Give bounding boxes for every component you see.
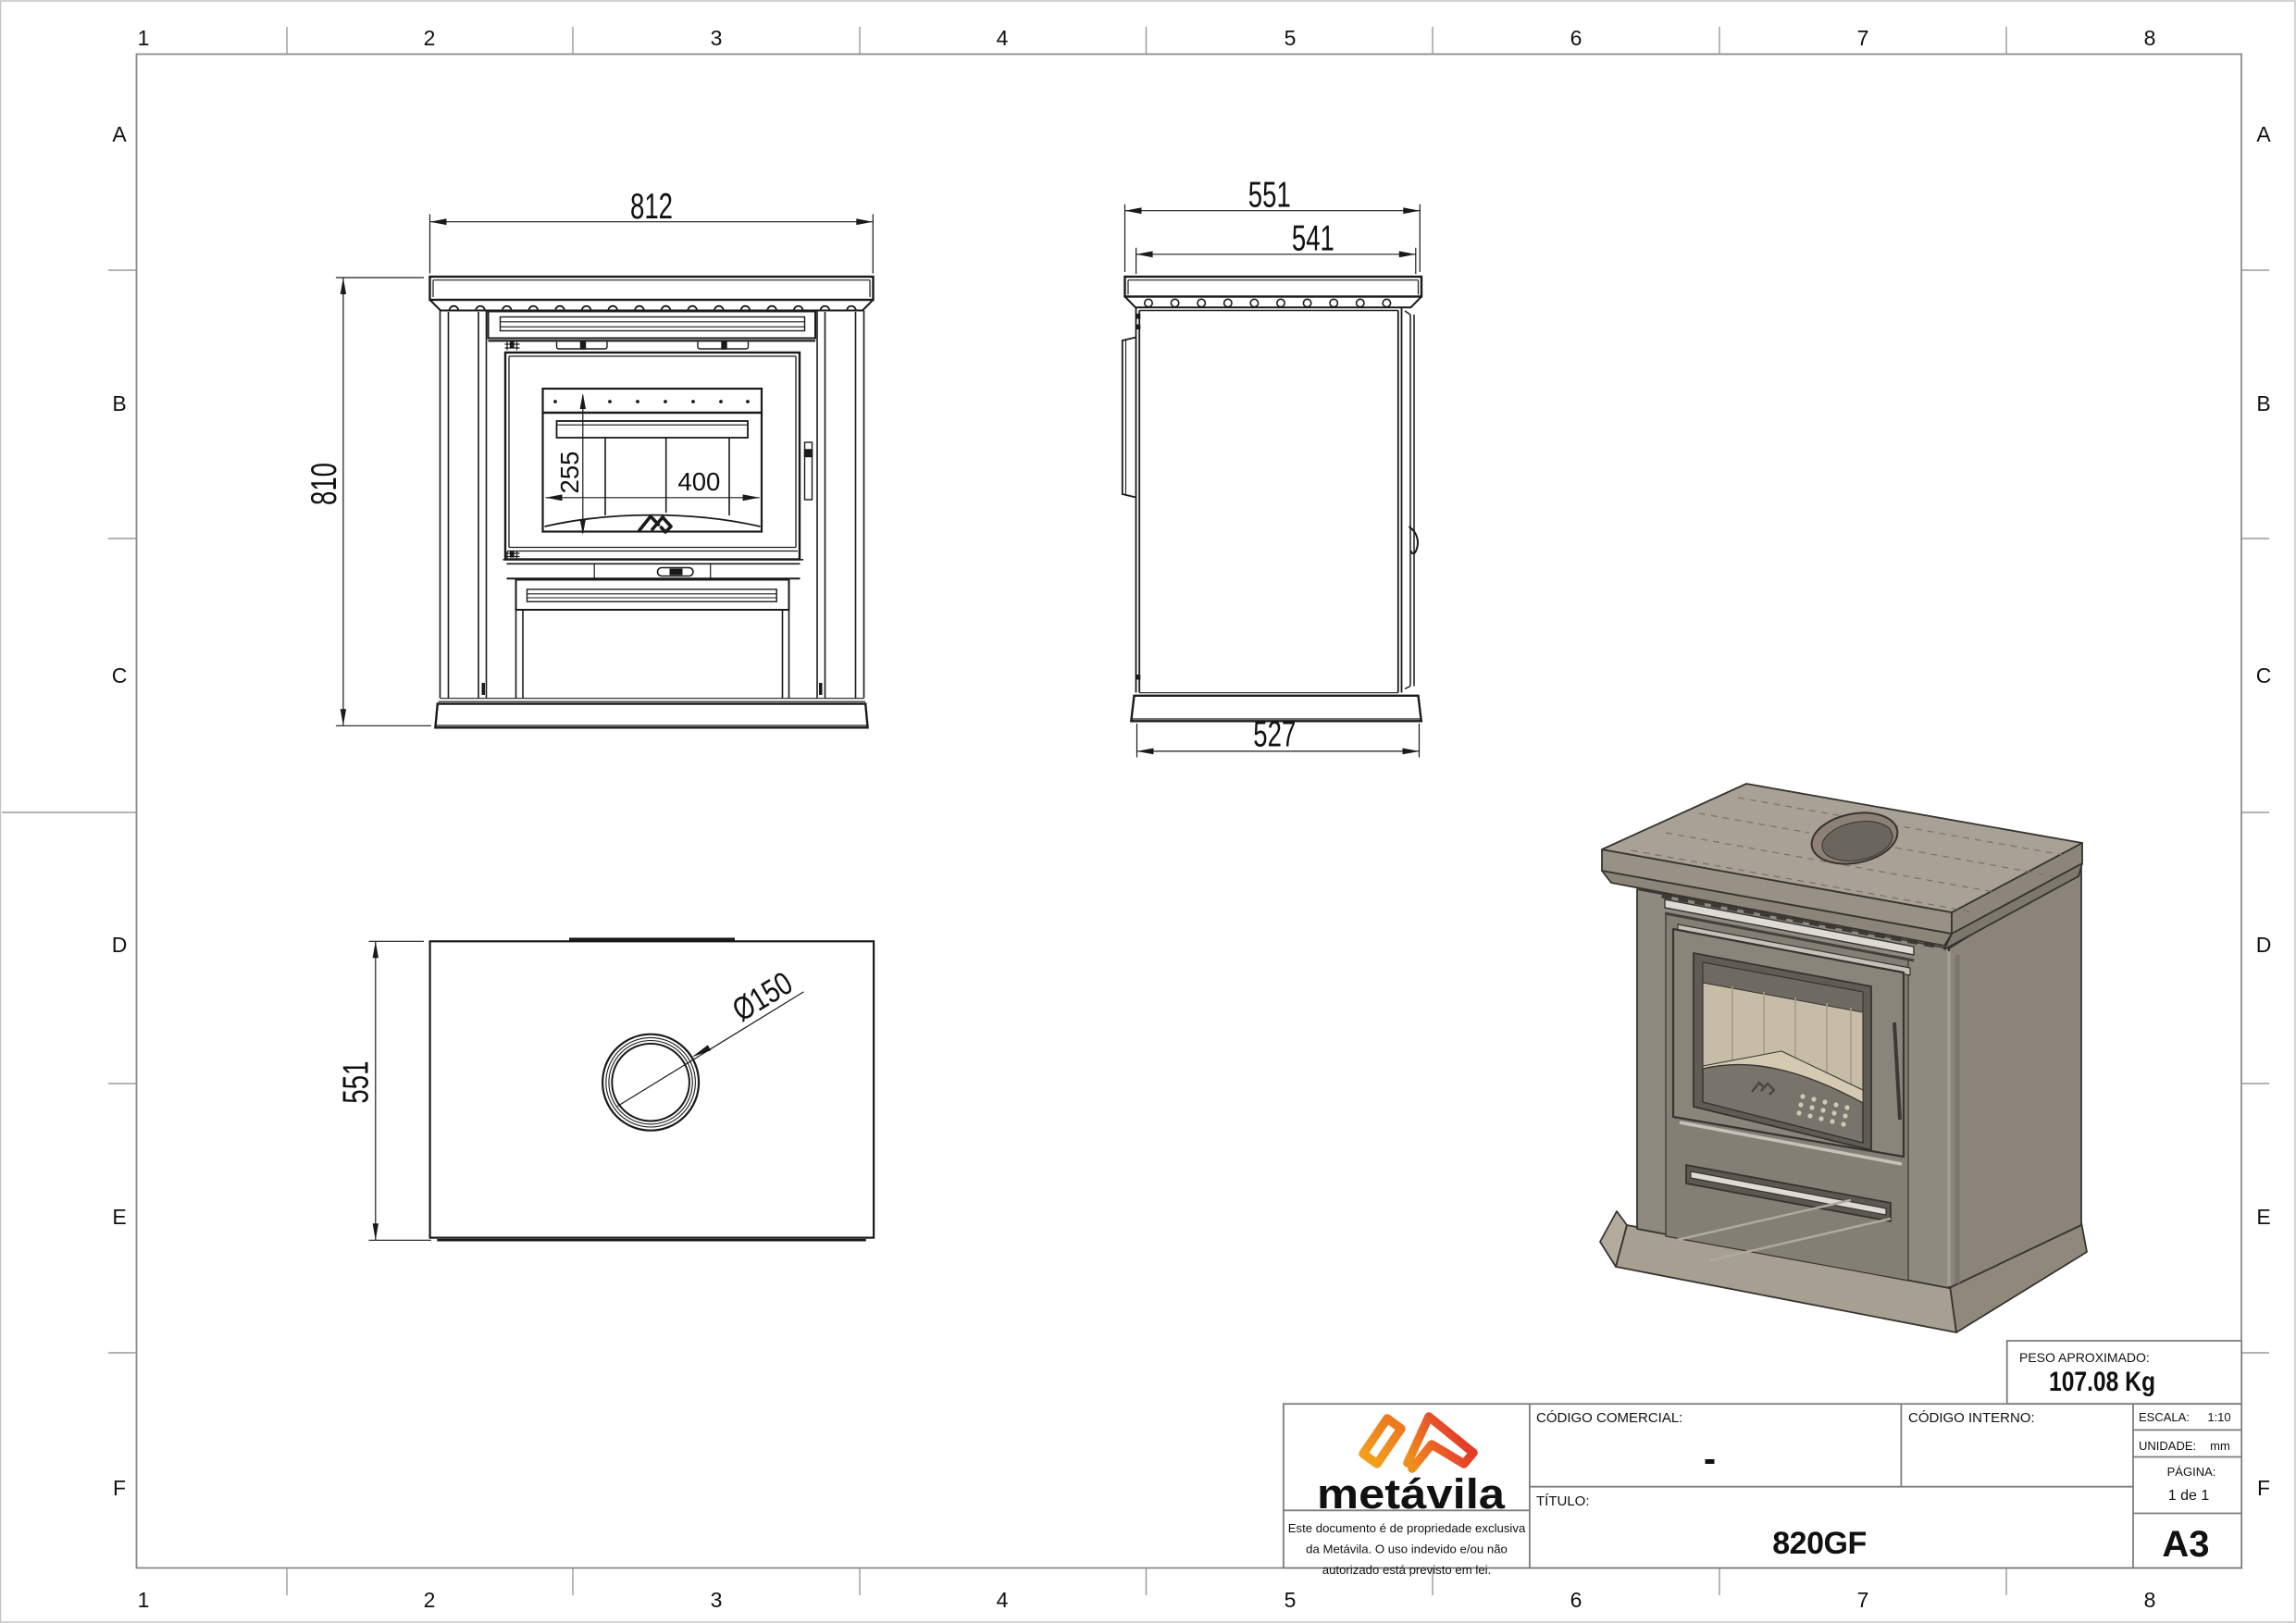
svg-text:7: 7 (1857, 26, 1869, 50)
svg-text:810: 810 (304, 463, 344, 505)
svg-text:TÍTULO:: TÍTULO: (1536, 1493, 1590, 1509)
svg-text:6: 6 (1570, 1588, 1582, 1612)
svg-text:1 de 1: 1 de 1 (2168, 1488, 2210, 1504)
svg-text:D: D (2256, 933, 2272, 957)
svg-text:metávila: metávila (1317, 1470, 1506, 1518)
svg-text:3: 3 (711, 1588, 723, 1612)
svg-text:A3: A3 (2162, 1524, 2209, 1565)
svg-text:107.08 Kg: 107.08 Kg (2049, 1367, 2155, 1397)
svg-text:mm: mm (2210, 1439, 2230, 1453)
svg-text:3: 3 (711, 26, 723, 50)
svg-text:2: 2 (424, 1588, 436, 1612)
svg-text:E: E (112, 1205, 126, 1229)
svg-text:400: 400 (677, 467, 720, 496)
svg-text:1:10: 1:10 (2207, 1410, 2230, 1424)
svg-text:541: 541 (1292, 219, 1334, 259)
svg-text:255: 255 (555, 452, 584, 494)
svg-text:551: 551 (337, 1061, 377, 1104)
svg-text:PESO APROXIMADO:: PESO APROXIMADO: (2019, 1350, 2150, 1365)
svg-text:8: 8 (2144, 1588, 2156, 1612)
svg-text:5: 5 (1285, 26, 1297, 50)
svg-text:UNIDADE:: UNIDADE: (2139, 1439, 2196, 1453)
svg-text:1: 1 (138, 1588, 150, 1612)
svg-text:PÁGINA:: PÁGINA: (2167, 1465, 2216, 1479)
svg-text:C: C (2256, 663, 2272, 688)
svg-text:7: 7 (1857, 1588, 1869, 1612)
svg-text:6: 6 (1570, 26, 1582, 50)
svg-text:820GF: 820GF (1772, 1526, 1866, 1561)
svg-text:2: 2 (424, 26, 436, 50)
svg-text:551: 551 (1248, 176, 1291, 216)
svg-text:812: 812 (630, 187, 673, 227)
svg-text:4: 4 (997, 26, 1009, 50)
svg-text:da Metávila. O uso indevido e/: da Metávila. O uso indevido e/ou não (1306, 1542, 1508, 1556)
svg-text:5: 5 (1285, 1588, 1297, 1612)
svg-text:F: F (2257, 1476, 2270, 1500)
svg-text:8: 8 (2144, 26, 2156, 50)
svg-text:A: A (112, 122, 127, 146)
svg-text:B: B (2256, 391, 2270, 415)
svg-text:C: C (112, 663, 128, 688)
svg-text:B: B (112, 391, 126, 415)
svg-text:CÓDIGO INTERNO:: CÓDIGO INTERNO: (1908, 1410, 2035, 1426)
svg-text:Este documento é de propriedad: Este documento é de propriedade exclusiv… (1288, 1521, 1526, 1535)
svg-text:ESCALA:: ESCALA: (2139, 1410, 2190, 1424)
svg-text:1: 1 (138, 26, 150, 50)
svg-text:E: E (2256, 1205, 2270, 1229)
svg-text:autorizado está previsto em le: autorizado está previsto em lei. (1322, 1563, 1492, 1577)
svg-text:F: F (113, 1476, 126, 1500)
svg-text:CÓDIGO COMERCIAL:: CÓDIGO COMERCIAL: (1536, 1410, 1682, 1426)
svg-text:4: 4 (997, 1588, 1009, 1612)
svg-text:527: 527 (1253, 715, 1296, 755)
svg-text:D: D (112, 933, 128, 957)
svg-text:A: A (2256, 122, 2271, 146)
